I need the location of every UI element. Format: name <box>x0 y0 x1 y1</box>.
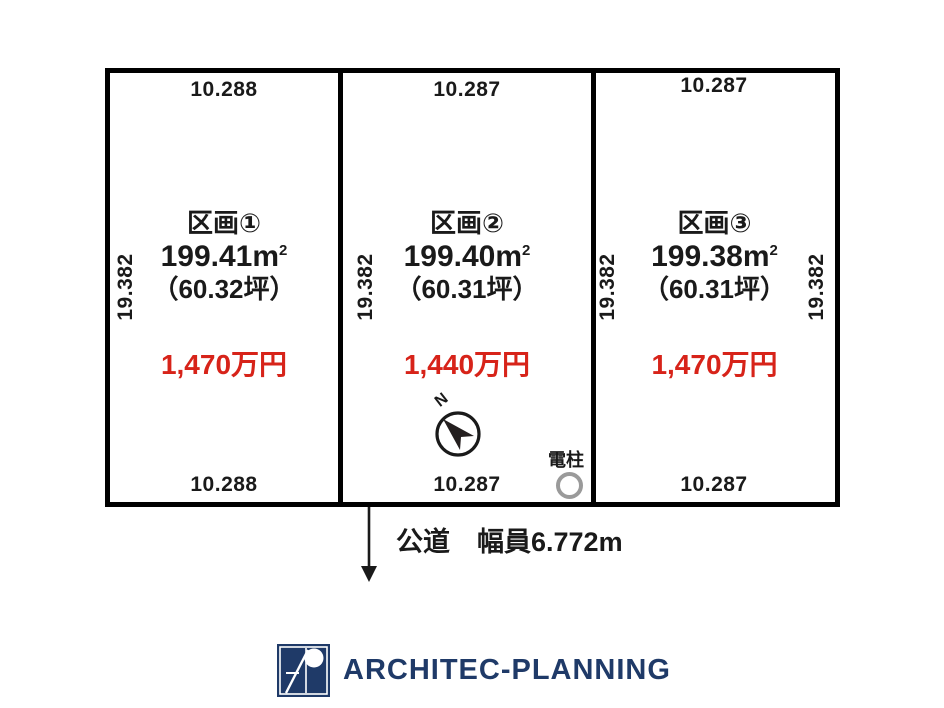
plot2-name: 区画② <box>343 208 591 239</box>
plot1-area-value: 199.41 <box>161 240 253 273</box>
plot1-top-dimension: 10.288 <box>149 78 299 102</box>
down-arrow-icon <box>356 507 382 583</box>
plot1-name: 区画① <box>110 208 338 239</box>
plot2-area: 199.40m2 <box>343 239 591 274</box>
plot3-area: 199.38m2 <box>596 239 833 274</box>
plot3-area-unit-sup: 2 <box>770 242 778 259</box>
plot3-top-dimension: 10.287 <box>639 74 789 98</box>
plot2-tsubo: （60.31坪） <box>343 274 591 305</box>
road-direction-arrow <box>356 507 382 588</box>
plot2-area-unit: m <box>495 240 522 273</box>
plot2-top-dimension: 10.287 <box>392 78 542 102</box>
plot1-info: 区画① 199.41m2 （60.32坪） <box>110 208 338 305</box>
compass-north-letter: N <box>432 390 452 411</box>
plot3-area-unit: m <box>743 240 770 273</box>
plot3-area-value: 199.38 <box>651 240 743 273</box>
plot1-tsubo: （60.32坪） <box>110 274 338 305</box>
company-logo: ARCHITEC-PLANNING <box>277 644 671 697</box>
road-label: 公道 幅員6.772m <box>396 520 623 559</box>
plot3-price: 1,470万円 <box>596 343 833 383</box>
plot3-name: 区画③ <box>596 208 833 239</box>
plot2-info: 区画② 199.40m2 （60.31坪） <box>343 208 591 305</box>
compass-icon: N <box>424 390 490 460</box>
plot1-area-unit: m <box>252 240 279 273</box>
utility-pole-marker <box>556 472 583 499</box>
plot3-bottom-dimension: 10.287 <box>639 473 789 497</box>
utility-pole-label: 電柱 <box>538 446 594 472</box>
plot1-area-unit-sup: 2 <box>279 242 287 259</box>
plot2-area-value: 199.40 <box>404 240 496 273</box>
company-name: ARCHITEC-PLANNING <box>343 654 671 687</box>
plot1-bottom-dimension: 10.288 <box>149 473 299 497</box>
architec-planning-logo-icon <box>277 644 330 697</box>
plot1-price: 1,470万円 <box>110 343 338 383</box>
plot2-price: 1,440万円 <box>343 343 591 383</box>
plot3-info: 区画③ 199.38m2 （60.31坪） <box>596 208 833 305</box>
plot1-area: 199.41m2 <box>110 239 338 274</box>
plot2-area-unit-sup: 2 <box>522 242 530 259</box>
compass: N <box>424 390 490 465</box>
plot2-bottom-dimension: 10.287 <box>392 473 542 497</box>
plot3-tsubo: （60.31坪） <box>596 274 833 305</box>
